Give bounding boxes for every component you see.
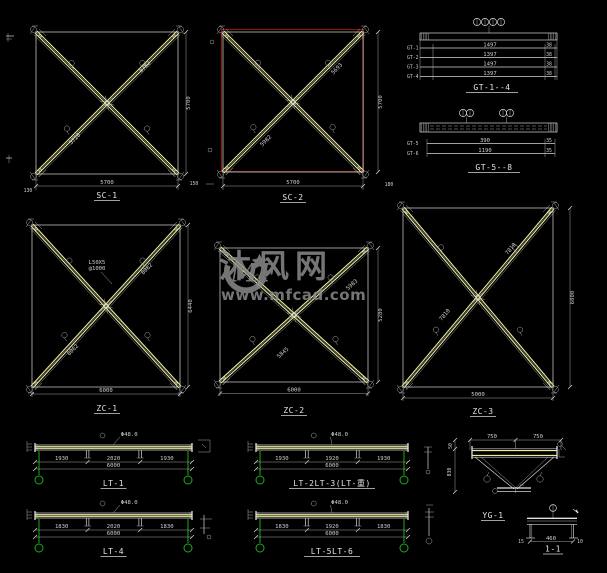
lt56-label: LT-5LT-6 (311, 547, 354, 556)
sc2-label: SC-2 (282, 193, 303, 202)
dim-text: 5700 (100, 180, 113, 186)
drawing-zc3: 5000600078107810ZC-3 (397, 202, 576, 417)
gt-row-name: GT-1 (407, 46, 419, 52)
dim-text: 830 (447, 468, 453, 477)
dim-text: 1830 (160, 524, 173, 530)
drawing-lt1: 1930202019306000Φ48.0LT-1 (27, 432, 194, 489)
dim-text: 5280 (378, 308, 384, 321)
drawing-lt56: 1830192018306000Φ48.0LT-5LT-6 (248, 500, 410, 557)
dim-text: 1920 (325, 524, 338, 530)
dim-text: 7810 (439, 308, 452, 322)
dim-text: 6440 (188, 299, 194, 312)
cad-canvas: 5700130150570057825720SC-157001805700569… (0, 0, 607, 573)
drawing-gt14: GT-1149738GT-2139738GT-3149738GT-4139738… (407, 18, 557, 92)
dim-text: 5700 (378, 95, 384, 108)
dim-text: 15 (518, 539, 524, 545)
dim-text: 35 (546, 138, 552, 144)
lt56-note: Φ48.0 (331, 500, 348, 506)
drawing-zc1: 60006440L50X5@100080828062ZC-1 (26, 219, 194, 414)
gt-row-name: GT-6 (407, 151, 419, 157)
dim-text: 5983 (345, 279, 359, 292)
dim-text: 38 (546, 52, 552, 58)
dim-text: 1190 (478, 148, 491, 154)
dim-text: 5700 (186, 96, 192, 109)
dim-text: 180 (385, 182, 394, 188)
dim-text: 1920 (325, 456, 338, 462)
gt-row-name: GT-2 (407, 55, 419, 61)
dim-text: 1830 (275, 524, 288, 530)
gt-row-name: GT-4 (407, 74, 419, 80)
lt1-label: LT-1 (103, 479, 124, 488)
cad-drawing: 5700130150570057825720SC-157001805700569… (0, 0, 607, 573)
dim-text: 5000 (471, 392, 484, 398)
lt4-note: Φ48.0 (121, 500, 138, 506)
dim-text: 6000 (325, 531, 338, 537)
dim-text: 750 (533, 434, 543, 440)
dim-text: 6000 (99, 388, 112, 394)
dim-text: 38 (546, 61, 552, 67)
dim-text: 6000 (325, 463, 338, 469)
lt23-label: LT-2LT-3(LT-重) (293, 478, 371, 488)
drawing-sc1: 5700130150570057825720SC-1 (24, 26, 199, 201)
lt1-note: Φ48.0 (121, 432, 138, 438)
dim-text: 5700 (286, 180, 299, 186)
dim-text: 460 (546, 536, 556, 542)
gt14-title: GT-1--4 (473, 83, 510, 92)
drawing-lt4: 1830202018306000Φ48.0LT-4 (27, 500, 194, 557)
gt58-title: GT-5--8 (475, 163, 512, 172)
dim-text: 1397 (483, 52, 496, 58)
dim-text: 38 (546, 71, 552, 77)
zc2-label: ZC-2 (283, 406, 304, 415)
dim-text: 5845 (276, 347, 290, 360)
zc3-label: ZC-3 (472, 407, 493, 416)
dim-text: 35 (546, 148, 552, 154)
dim-text: 1930 (377, 456, 390, 462)
drawing-sec11: 46015101-1 (518, 505, 583, 554)
dim-text: 1497 (483, 61, 496, 67)
drawing-yg1: 75075050830YG-1 (447, 434, 566, 521)
dim-text: 50 (448, 443, 454, 449)
dim-text: 6000 (107, 531, 120, 537)
zc1-note: @1000 (89, 266, 106, 272)
dim-text: 5982 (259, 134, 273, 148)
gt-row-name: GT-3 (407, 65, 419, 71)
dim-text: 390 (480, 138, 490, 144)
dim-text: 6000 (570, 291, 576, 304)
yg1-label: YG-1 (482, 511, 503, 520)
lt4-label: LT-4 (103, 547, 124, 556)
dim-text: 1397 (483, 71, 496, 77)
drawing-zc2: 6000528059835845ZC-2 (214, 242, 384, 416)
dim-text: 1830 (377, 524, 390, 530)
dim-text: 2020 (107, 524, 120, 530)
dim-text: 1930 (160, 456, 173, 462)
drawing-gt58: GT-539035GT-6119035GT-5--8 (407, 109, 557, 172)
dim-text: 6000 (107, 463, 120, 469)
sec11-label: 1-1 (545, 545, 561, 554)
dim-text: 1497 (483, 42, 496, 48)
dim-text: 1930 (275, 456, 288, 462)
dim-text: 10 (577, 539, 583, 545)
dim-text: 130 (24, 188, 33, 194)
gt-row-name: GT-5 (407, 141, 419, 147)
dim-text: 2020 (107, 456, 120, 462)
sc1-label: SC-1 (96, 191, 117, 200)
dim-text: 150 (190, 181, 199, 187)
dim-text: 38 (546, 42, 552, 48)
lt23-note: Φ48.0 (331, 432, 348, 438)
drawing-sc2: 5700180570056935982SC-2 (217, 26, 393, 203)
dim-text: 750 (487, 434, 497, 440)
zc1-label: ZC-1 (96, 404, 117, 413)
dim-text: 6000 (287, 388, 300, 394)
dim-text: 1830 (55, 524, 68, 530)
dim-text: 1930 (55, 456, 68, 462)
drawing-lt23: 1930192019306000Φ48.0LT-2LT-3(LT-重) (248, 432, 410, 489)
